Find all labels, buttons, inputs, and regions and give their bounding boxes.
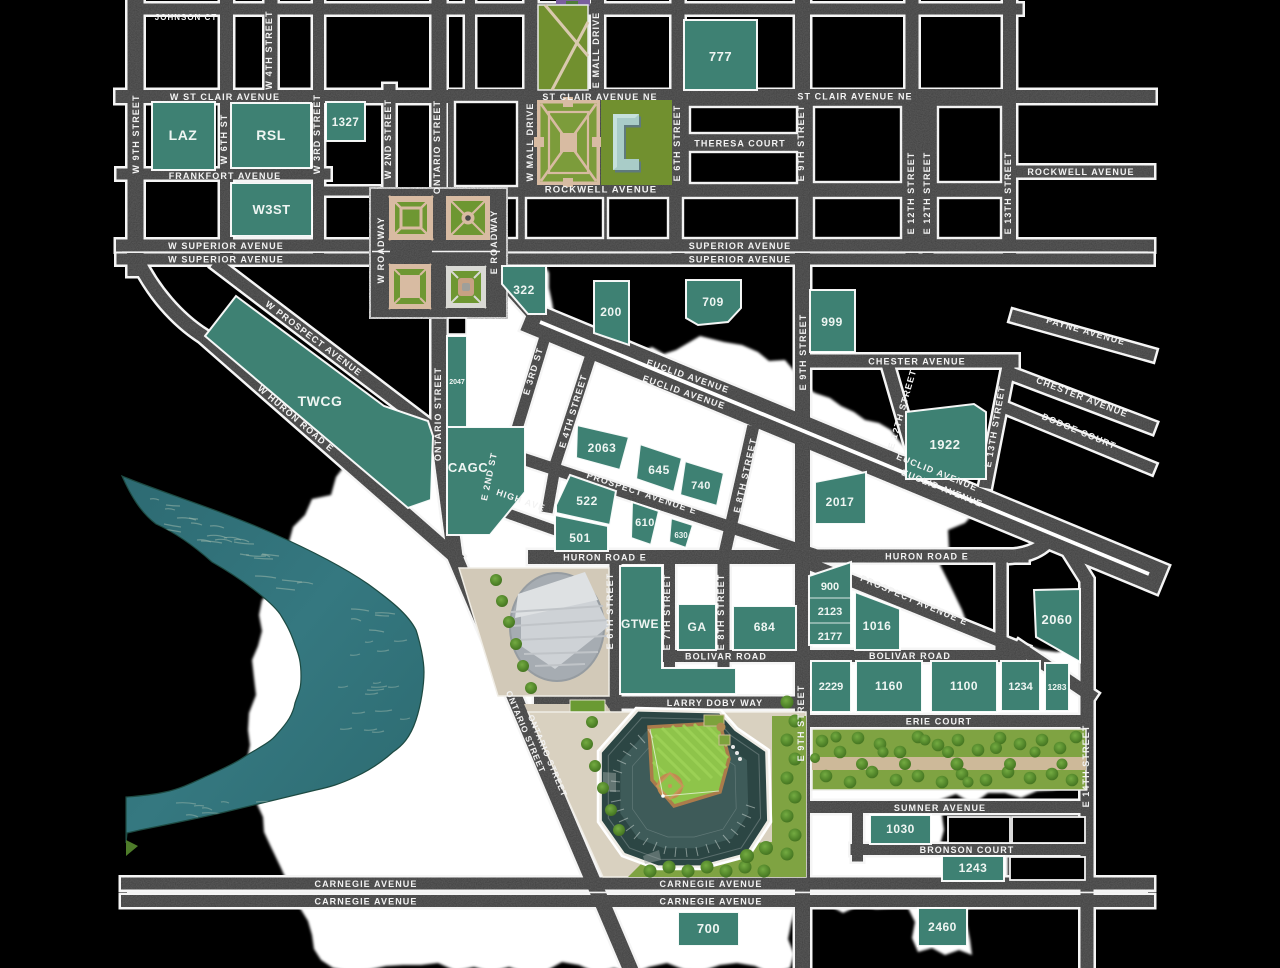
svg-text:W ROADWAY: W ROADWAY <box>376 216 386 283</box>
svg-text:W SUPERIOR AVENUE: W SUPERIOR AVENUE <box>168 255 284 265</box>
svg-text:684: 684 <box>754 620 776 634</box>
svg-text:E 6TH STREET: E 6TH STREET <box>672 105 682 182</box>
svg-text:ONTARIO STREET: ONTARIO STREET <box>432 100 442 194</box>
svg-text:E 6TH STREET: E 6TH STREET <box>605 573 615 650</box>
svg-text:610: 610 <box>635 517 655 529</box>
svg-text:2047: 2047 <box>449 379 465 386</box>
svg-text:709: 709 <box>702 295 724 309</box>
svg-text:322: 322 <box>513 283 535 297</box>
svg-text:W ST CLAIR AVENUE: W ST CLAIR AVENUE <box>170 92 280 102</box>
svg-text:2123: 2123 <box>818 606 842 618</box>
svg-text:ST CLAIR AVENUE NE: ST CLAIR AVENUE NE <box>542 92 657 102</box>
svg-text:E 12TH STREET: E 12TH STREET <box>922 152 932 235</box>
svg-text:E 7TH STREET: E 7TH STREET <box>662 574 672 651</box>
svg-text:W 4TH STREET: W 4TH STREET <box>264 10 274 89</box>
svg-text:W 3RD STREET: W 3RD STREET <box>312 94 322 174</box>
svg-text:BOLIVAR ROAD: BOLIVAR ROAD <box>869 651 951 661</box>
svg-text:HURON ROAD E: HURON ROAD E <box>885 552 969 562</box>
svg-text:645: 645 <box>648 463 670 477</box>
svg-text:THERESA COURT: THERESA COURT <box>694 139 785 149</box>
svg-text:E 9TH STREET: E 9TH STREET <box>798 314 808 391</box>
svg-text:JOHNSON CT: JOHNSON CT <box>155 13 217 22</box>
svg-text:E 9TH STREET: E 9TH STREET <box>796 105 806 182</box>
svg-text:2460: 2460 <box>928 920 957 934</box>
svg-text:1283: 1283 <box>1048 682 1067 692</box>
svg-text:900: 900 <box>821 581 839 593</box>
svg-text:FRANKFORT AVENUE: FRANKFORT AVENUE <box>169 171 282 181</box>
svg-text:630: 630 <box>674 531 688 540</box>
svg-text:E MALL DRIVE: E MALL DRIVE <box>591 12 601 89</box>
svg-text:2017: 2017 <box>826 495 855 509</box>
svg-text:LARRY DOBY WAY: LARRY DOBY WAY <box>667 698 763 708</box>
svg-text:1100: 1100 <box>950 679 978 693</box>
svg-text:1327: 1327 <box>332 117 360 129</box>
svg-text:E ROADWAY: E ROADWAY <box>489 210 499 275</box>
svg-text:CARNEGIE AVENUE: CARNEGIE AVENUE <box>314 897 417 907</box>
svg-text:BOLIVAR ROAD: BOLIVAR ROAD <box>685 652 767 662</box>
svg-text:ROCKWELL AVENUE: ROCKWELL AVENUE <box>1027 167 1134 177</box>
svg-text:CHESTER AVENUE: CHESTER AVENUE <box>868 357 965 367</box>
svg-text:522: 522 <box>576 494 598 508</box>
svg-text:740: 740 <box>691 480 711 492</box>
svg-text:SUMNER AVENUE: SUMNER AVENUE <box>894 803 986 813</box>
svg-text:TWCG: TWCG <box>298 393 343 409</box>
svg-text:777: 777 <box>709 49 732 64</box>
svg-text:BRONSON COURT: BRONSON COURT <box>920 845 1015 855</box>
svg-text:CAGC: CAGC <box>448 460 488 475</box>
svg-text:1243: 1243 <box>959 861 988 875</box>
svg-text:1922: 1922 <box>930 437 961 452</box>
svg-text:W SUPERIOR AVENUE: W SUPERIOR AVENUE <box>168 241 284 251</box>
svg-text:GTWE: GTWE <box>621 617 659 631</box>
svg-text:1160: 1160 <box>875 679 903 693</box>
svg-text:E 8TH STREET: E 8TH STREET <box>716 574 726 651</box>
svg-text:SUPERIOR AVENUE: SUPERIOR AVENUE <box>689 255 792 265</box>
svg-text:W 6TH ST: W 6TH ST <box>219 114 229 165</box>
svg-text:ONTARIO STREET: ONTARIO STREET <box>433 367 443 461</box>
svg-text:E 14TH STREET: E 14TH STREET <box>1081 725 1091 808</box>
svg-text:1234: 1234 <box>1008 681 1033 693</box>
svg-text:W3ST: W3ST <box>252 202 290 217</box>
svg-text:CARNEGIE AVENUE: CARNEGIE AVENUE <box>314 879 417 889</box>
svg-text:CARNEGIE AVENUE: CARNEGIE AVENUE <box>659 897 762 907</box>
svg-text:GA: GA <box>688 620 707 634</box>
svg-text:W 9TH STREET: W 9TH STREET <box>131 94 141 173</box>
svg-text:ROCKWELL AVENUE: ROCKWELL AVENUE <box>545 185 657 196</box>
svg-text:W MALL DRIVE: W MALL DRIVE <box>525 102 535 181</box>
svg-text:LAZ: LAZ <box>169 127 198 143</box>
svg-text:200: 200 <box>600 305 622 319</box>
svg-text:1016: 1016 <box>863 619 892 633</box>
svg-text:2063: 2063 <box>588 441 617 455</box>
svg-text:ERIE COURT: ERIE COURT <box>906 717 973 727</box>
svg-text:E 12TH STREET: E 12TH STREET <box>906 152 916 235</box>
svg-text:ST CLAIR AVENUE NE: ST CLAIR AVENUE NE <box>797 92 912 102</box>
svg-text:2060: 2060 <box>1042 612 1073 627</box>
svg-text:RSL: RSL <box>256 127 286 143</box>
svg-text:501: 501 <box>569 531 591 545</box>
svg-text:2229: 2229 <box>819 681 843 693</box>
svg-text:700: 700 <box>697 921 720 936</box>
svg-text:E 9TH STREET: E 9TH STREET <box>796 685 806 762</box>
svg-text:W 2ND STREET: W 2ND STREET <box>383 99 393 179</box>
svg-text:1030: 1030 <box>886 822 915 836</box>
svg-text:2177: 2177 <box>818 631 842 643</box>
svg-text:E 13TH STREET: E 13TH STREET <box>1003 152 1013 235</box>
svg-text:SUPERIOR AVENUE: SUPERIOR AVENUE <box>689 241 792 251</box>
svg-text:HURON ROAD E: HURON ROAD E <box>563 553 647 563</box>
svg-text:CARNEGIE AVENUE: CARNEGIE AVENUE <box>659 879 762 889</box>
svg-text:999: 999 <box>821 315 843 329</box>
